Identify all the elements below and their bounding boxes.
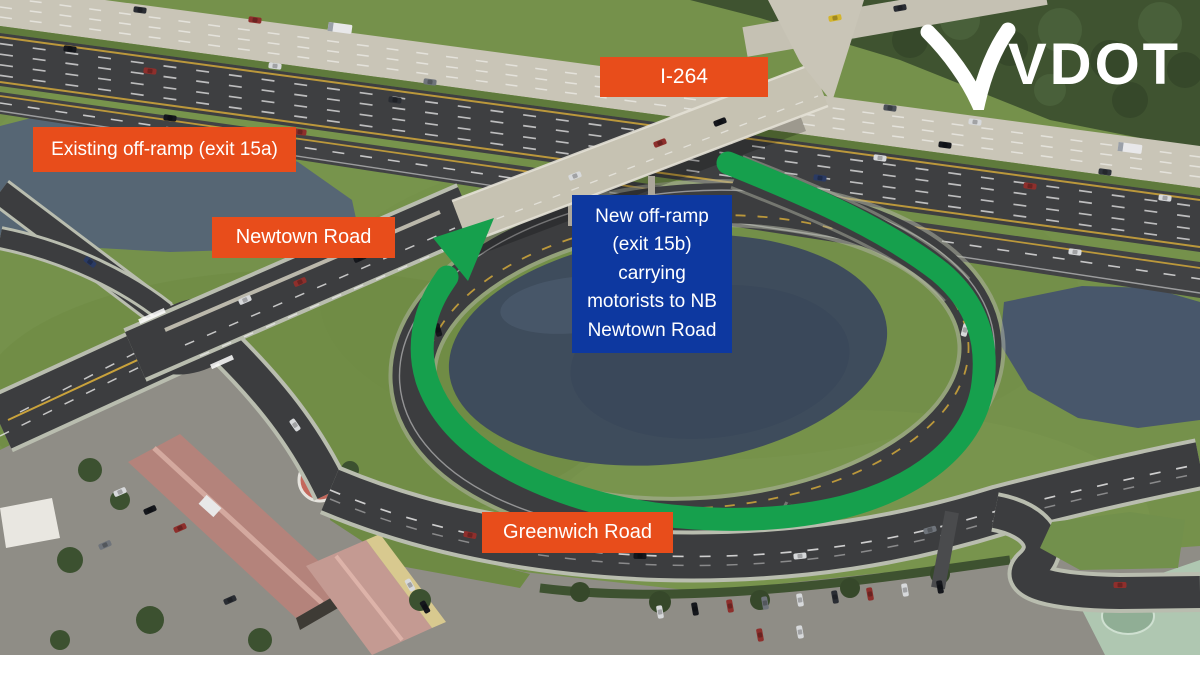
vdot-logo: VDOT	[908, 10, 1193, 110]
label-existing-offramp: Existing off-ramp (exit 15a)	[33, 127, 296, 172]
white-margin-strip	[0, 655, 1200, 675]
aerial-rendering: I-264 Existing off-ramp (exit 15a) Newto…	[0, 0, 1200, 675]
label-greenwich-road: Greenwich Road	[482, 512, 673, 553]
vdot-logo-text: VDOT	[1008, 32, 1181, 97]
callout-new-offramp: New off-ramp (exit 15b) carrying motoris…	[572, 195, 732, 353]
label-newtown-road: Newtown Road	[212, 217, 395, 258]
vdot-swoosh-icon	[928, 30, 1008, 102]
label-i264: I-264	[600, 57, 768, 97]
